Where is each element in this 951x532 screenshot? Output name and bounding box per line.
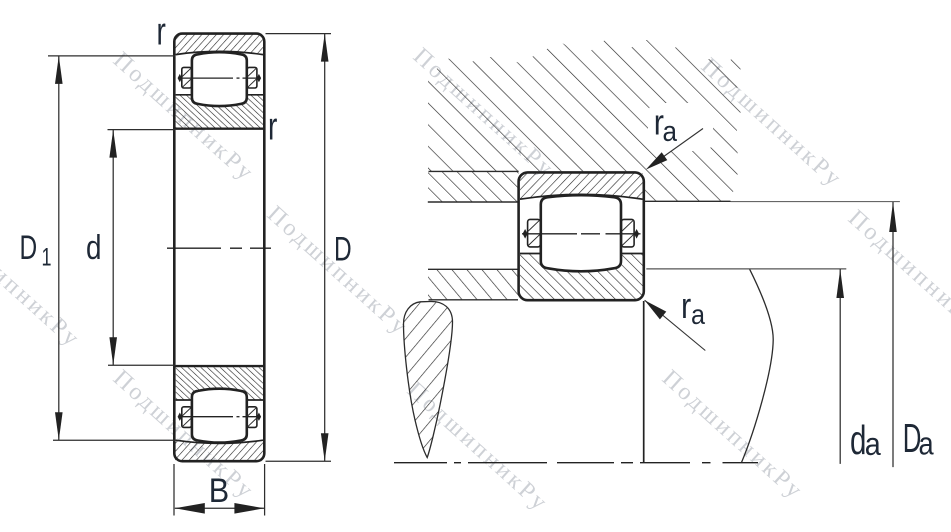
- svg-text:B: B: [209, 472, 229, 510]
- svg-text:D: D: [20, 229, 38, 267]
- svg-text:r: r: [268, 105, 277, 149]
- svg-text:a: a: [919, 426, 935, 462]
- svg-text:a: a: [663, 115, 678, 148]
- svg-text:D: D: [334, 231, 352, 269]
- svg-text:r: r: [157, 10, 166, 54]
- svg-text:r: r: [681, 287, 691, 327]
- svg-text:a: a: [865, 427, 881, 463]
- svg-text:d: d: [86, 228, 102, 266]
- svg-text:1: 1: [42, 243, 52, 272]
- svg-text:a: a: [691, 299, 705, 331]
